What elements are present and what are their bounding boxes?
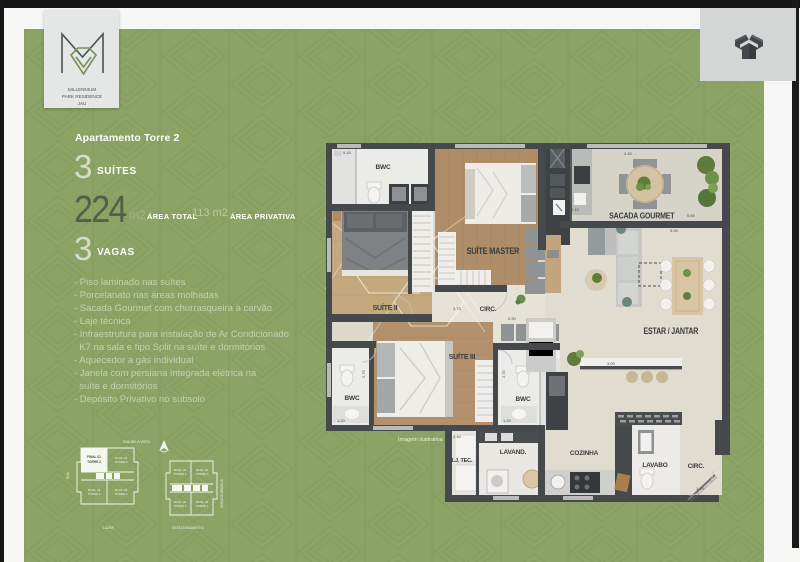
svg-text:TORRE 1: TORRE 1 <box>174 472 187 476</box>
svg-text:CIRC.: CIRC. <box>480 306 497 313</box>
svg-text:LAZER: LAZER <box>103 526 114 530</box>
svg-text:TORRE 2: TORRE 2 <box>115 460 128 464</box>
svg-text:3.73: 3.73 <box>453 306 462 311</box>
svg-text:COZINHA: COZINHA <box>570 450 599 457</box>
svg-text:SUÍTE MASTER: SUÍTE MASTER <box>467 246 520 256</box>
svg-text:2.75: 2.75 <box>501 369 506 378</box>
svg-text:4.40: 4.40 <box>624 151 633 156</box>
svg-text:TORRE 1: TORRE 1 <box>196 472 209 476</box>
svg-text:TORRE 1: TORRE 1 <box>174 504 187 508</box>
svg-text:TORRE 2: TORRE 2 <box>115 492 128 496</box>
svg-text:SACADA GOURMET: SACADA GOURMET <box>609 211 675 221</box>
svg-text:ESTAR / JANTAR: ESTAR / JANTAR <box>644 326 699 336</box>
svg-text:1.29: 1.29 <box>696 486 705 491</box>
svg-text:2.10: 2.10 <box>571 207 580 212</box>
svg-text:TORRE 2: TORRE 2 <box>87 460 101 464</box>
svg-text:LAVABO: LAVABO <box>642 462 667 469</box>
svg-text:BWC: BWC <box>345 395 360 402</box>
svg-text:SUÍTE III: SUÍTE III <box>449 352 476 361</box>
svg-text:ESTACIONAMENTO: ESTACIONAMENTO <box>172 526 204 530</box>
svg-text:SUÍTE II: SUÍTE II <box>373 303 398 312</box>
svg-text:BWC: BWC <box>376 164 391 171</box>
svg-text:PARK RESIDENCE: PARK RESIDENCE <box>62 94 102 99</box>
svg-text:2.75: 2.75 <box>361 369 366 378</box>
svg-text:FINAL 01: FINAL 01 <box>87 455 101 459</box>
svg-text:MILLENNIUM: MILLENNIUM <box>68 87 97 92</box>
svg-text:RUA BELA VISTA: RUA BELA VISTA <box>123 440 151 444</box>
svg-text:TORRE 1: TORRE 1 <box>196 504 209 508</box>
svg-text:2.40: 2.40 <box>453 434 462 439</box>
svg-text:2.90: 2.90 <box>508 316 517 321</box>
svg-text:AVENIDA BRASILIA: AVENIDA BRASILIA <box>220 478 224 508</box>
svg-text:3.73: 3.73 <box>371 314 380 319</box>
svg-text:1.29: 1.29 <box>503 418 512 423</box>
svg-text:5.05: 5.05 <box>670 228 679 233</box>
svg-text:BWC: BWC <box>516 396 531 403</box>
svg-text:3.05: 3.05 <box>607 361 616 366</box>
svg-text:5.65: 5.65 <box>687 213 696 218</box>
svg-text:CIRC.: CIRC. <box>688 463 705 470</box>
svg-text:5.18: 5.18 <box>343 150 352 155</box>
svg-text:1.20: 1.20 <box>337 418 346 423</box>
svg-text:RUA: RUA <box>66 471 70 479</box>
svg-text:LJ. TEC.: LJ. TEC. <box>452 458 473 464</box>
svg-text:LAVAND.: LAVAND. <box>500 449 527 456</box>
svg-text:JAU: JAU <box>78 101 87 106</box>
svg-text:TORRE 2: TORRE 2 <box>88 492 101 496</box>
